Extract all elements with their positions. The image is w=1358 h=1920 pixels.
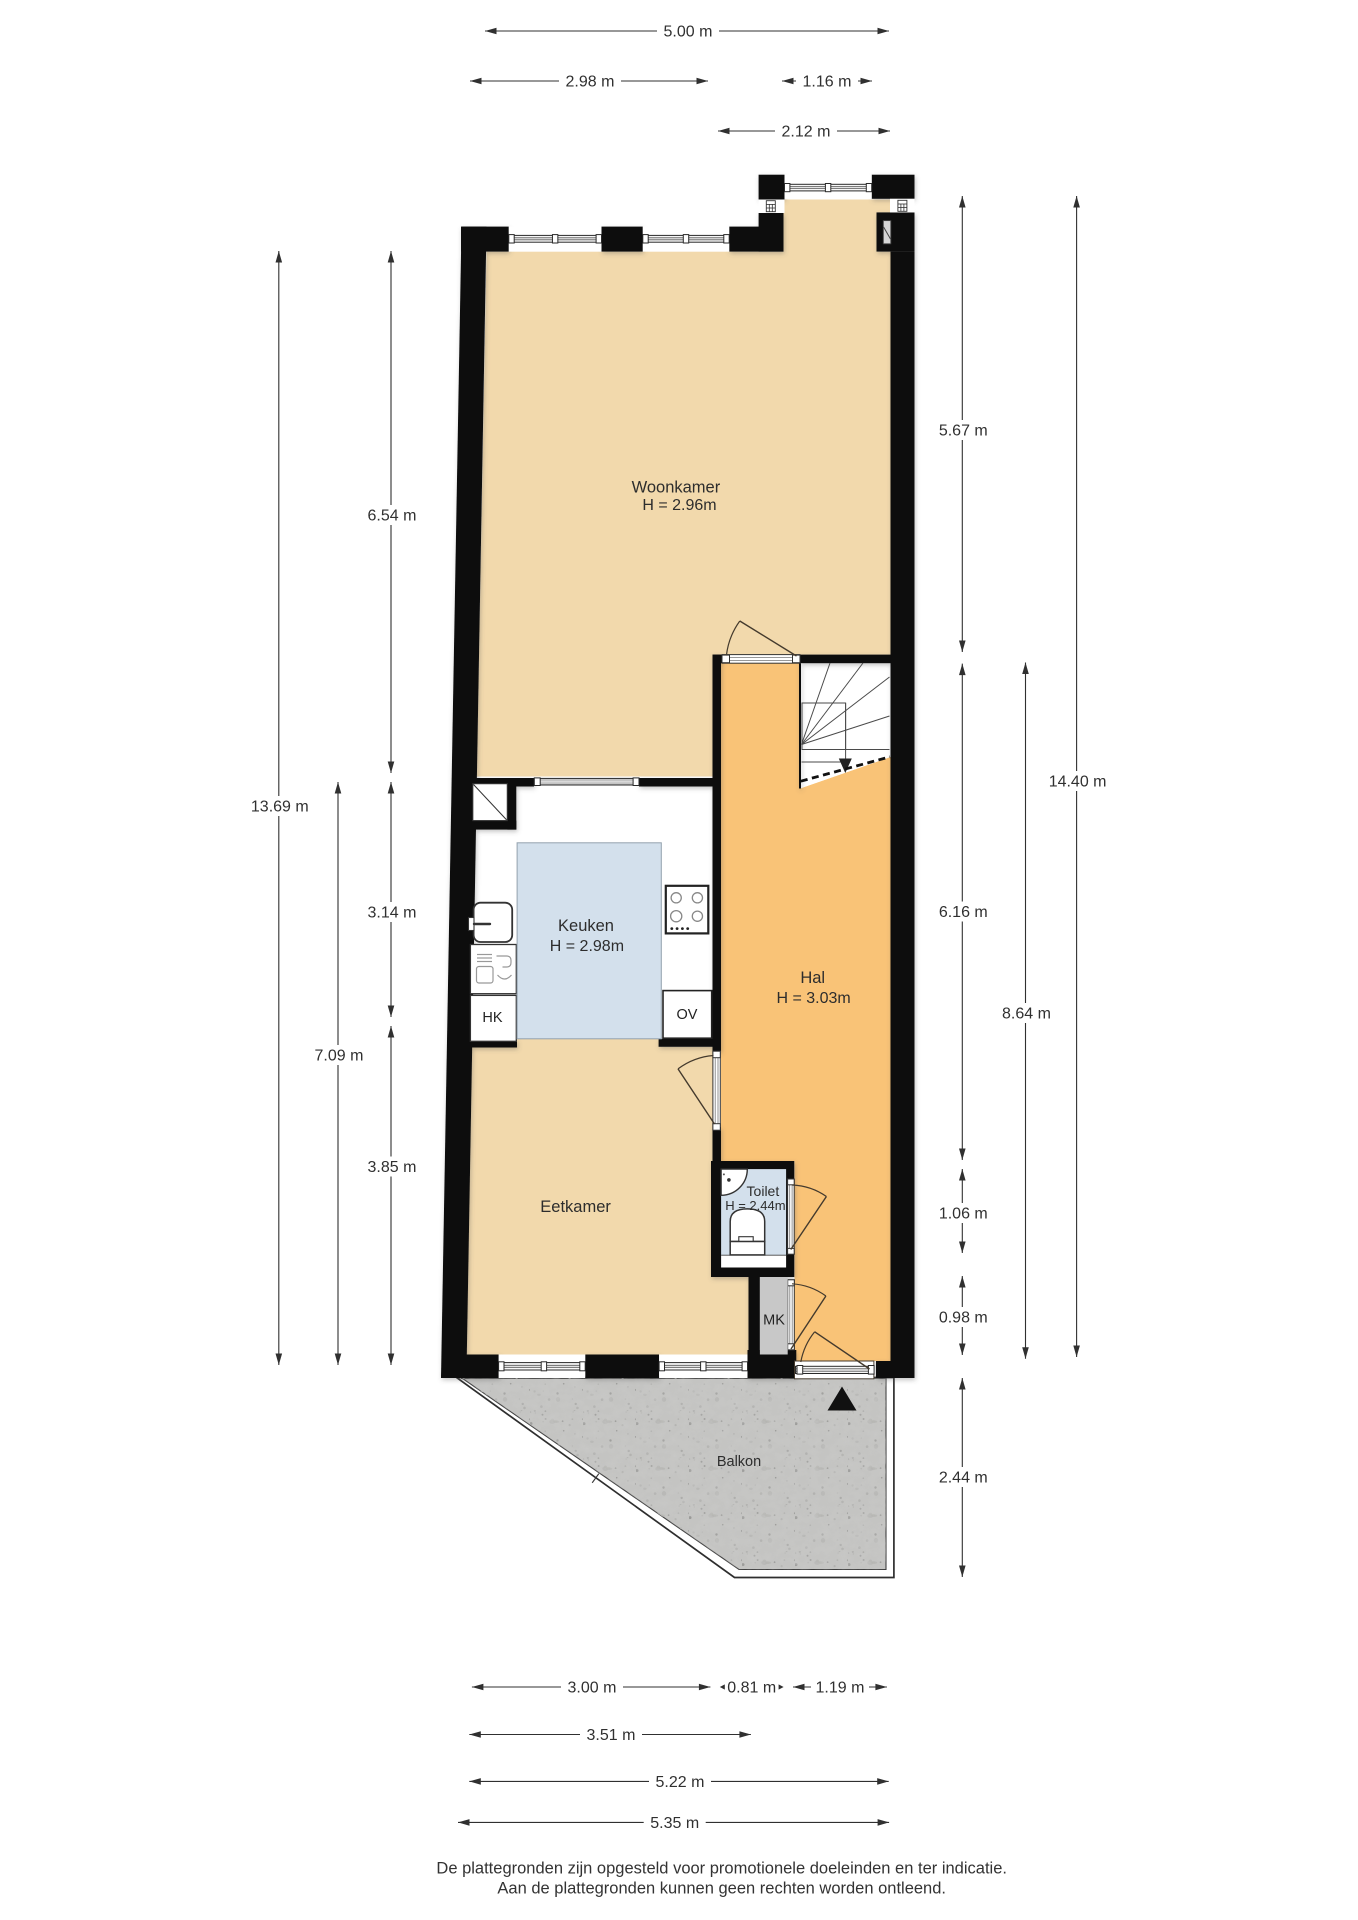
svg-text:3.00 m: 3.00 m [568, 1680, 617, 1697]
svg-text:H = 2.96m: H = 2.96m [642, 497, 716, 514]
svg-text:6.54 m: 6.54 m [368, 508, 417, 525]
svg-text:2.44 m: 2.44 m [939, 1470, 988, 1487]
svg-text:1.19 m: 1.19 m [816, 1680, 865, 1697]
svg-text:0.98 m: 0.98 m [939, 1310, 988, 1327]
svg-text:6.16 m: 6.16 m [939, 904, 988, 921]
svg-text:5.67 m: 5.67 m [939, 423, 988, 440]
svg-text:MK: MK [763, 1313, 785, 1329]
svg-text:0.81 m: 0.81 m [727, 1680, 776, 1697]
svg-text:H = 2.44m: H = 2.44m [725, 1198, 785, 1213]
svg-text:Balkon: Balkon [717, 1454, 761, 1470]
svg-text:Aan de plattegronden kunnen ge: Aan de plattegronden kunnen geen rechten… [497, 1880, 946, 1898]
svg-text:Eetkamer: Eetkamer [540, 1198, 611, 1216]
svg-text:5.00 m: 5.00 m [664, 24, 713, 41]
svg-text:7.09 m: 7.09 m [315, 1048, 364, 1065]
svg-text:1.06 m: 1.06 m [939, 1206, 988, 1223]
svg-text:De plattegronden zijn opgestel: De plattegronden zijn opgesteld voor pro… [436, 1860, 1007, 1878]
svg-text:Hal: Hal [800, 969, 825, 987]
svg-text:5.35 m: 5.35 m [650, 1815, 699, 1832]
svg-text:H = 3.03m: H = 3.03m [776, 990, 850, 1007]
svg-text:3.14 m: 3.14 m [368, 905, 417, 922]
svg-text:13.69 m: 13.69 m [251, 799, 309, 816]
svg-text:Woonkamer: Woonkamer [632, 479, 721, 497]
svg-text:Keuken: Keuken [558, 917, 614, 935]
svg-text:2.98 m: 2.98 m [566, 74, 615, 91]
svg-text:8.64 m: 8.64 m [1002, 1006, 1051, 1023]
svg-text:Toilet: Toilet [747, 1183, 780, 1199]
svg-text:3.51 m: 3.51 m [587, 1727, 636, 1744]
svg-text:3.85 m: 3.85 m [368, 1159, 417, 1176]
svg-text:HK: HK [482, 1010, 502, 1026]
svg-text:2.12 m: 2.12 m [782, 124, 831, 141]
svg-text:OV: OV [677, 1007, 698, 1023]
svg-text:H = 2.98m: H = 2.98m [550, 938, 624, 955]
svg-text:14.40 m: 14.40 m [1049, 774, 1107, 791]
svg-text:5.22 m: 5.22 m [656, 1774, 705, 1791]
svg-text:1.16 m: 1.16 m [803, 74, 852, 91]
